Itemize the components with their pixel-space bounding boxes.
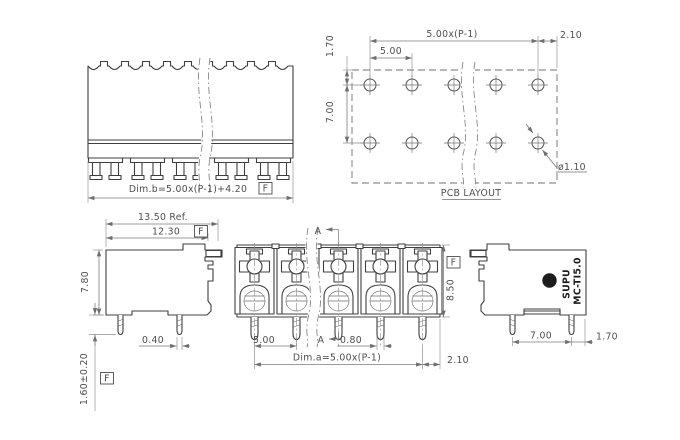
front-pin-width-label: 0.80 (340, 335, 362, 346)
datum-flag: F (198, 227, 204, 238)
pcb-hole-diameter-label: ø1.10 (558, 162, 586, 173)
pcb-edge-margin-label: 2.10 (560, 30, 582, 41)
front-height-label: 8.50 (446, 279, 457, 301)
dim-a-label: Dim.a=5.00x(P-1) (293, 353, 381, 364)
drawing-canvas: Dim.b=5.00x(P-1)+4.20 F 5.00x(P-1) 2.10 … (0, 0, 680, 440)
body-height-label: 7.80 (80, 271, 91, 293)
front-view: A A 5.00 0.80 Dim.a=5.00x(P-1) 2.10 F 8.… (235, 226, 469, 369)
brand-name: SUPU (562, 269, 573, 299)
side-body-outline (106, 244, 222, 335)
pcb-holes (360, 75, 548, 153)
pcb-pitch-label: 5.00 (380, 46, 402, 57)
front-width-label: 12.30 (152, 227, 180, 238)
pin-edge-label: 1.70 (596, 332, 618, 343)
pcb-row-pitch-label: 7.00 (325, 101, 336, 123)
pcb-layout-title: PCB LAYOUT (441, 188, 501, 199)
pcb-pitch-span-label: 5.00x(P-1) (426, 29, 477, 40)
datum-flag: F (263, 184, 269, 195)
datum-flag: F (104, 374, 110, 385)
dim-b-label: Dim.b=5.00x(P-1)+4.20 (129, 184, 247, 195)
technical-drawing-sheet: Dim.b=5.00x(P-1)+4.20 F 5.00x(P-1) 2.10 … (0, 0, 680, 440)
model-number: MC-TI5.0 (573, 257, 584, 305)
top-view-solder-pins (89, 158, 291, 180)
front-edge-margin-label: 2.10 (447, 355, 469, 366)
datum-flag: F (451, 258, 457, 269)
supu-logo-initial: S (545, 277, 556, 284)
side-view-right: S SUPU MC-TI5.0 7.00 1.70 (470, 244, 618, 346)
pin-width-side-label: 0.40 (142, 335, 164, 346)
pin-span-label: 7.00 (530, 331, 552, 342)
pin-length-label: 1.60±0.20 (79, 353, 90, 405)
pcb-layout-view: 5.00x(P-1) 2.10 5.00 1.70 7.00 ø1.10 PCB… (325, 29, 587, 200)
section-label-bottom: A (318, 335, 325, 346)
front-pitch-label: 5.00 (253, 335, 275, 346)
section-label-top: A (315, 226, 322, 237)
ref-width-label: 13.50 Ref. (138, 212, 188, 223)
pcb-row-offset-label: 1.70 (325, 35, 336, 57)
terminal-cells (235, 243, 442, 346)
top-view: Dim.b=5.00x(P-1)+4.20 F (88, 58, 293, 203)
side-view-left: 13.50 Ref. 12.30 F 7.80 0.40 1.60±0.20 F (79, 212, 222, 411)
